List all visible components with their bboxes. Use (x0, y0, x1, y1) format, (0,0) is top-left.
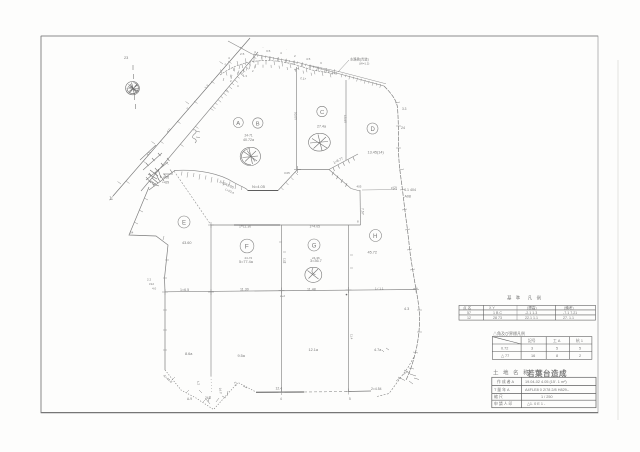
svg-text:11.2: 11.2 (283, 258, 287, 264)
svg-text:5: 5 (556, 347, 558, 351)
svg-text:≠(2): ≠(2) (391, 186, 397, 190)
svg-text:16: 16 (531, 354, 535, 358)
svg-text:1 ( 1.1: 1 ( 1.1 (375, 287, 384, 291)
svg-text:≠12: ≠12 (149, 282, 154, 286)
svg-text:F: F (245, 244, 249, 251)
svg-text:24: 24 (401, 126, 405, 130)
svg-text:4.3: 4.3 (404, 307, 409, 311)
svg-text:D: D (371, 127, 376, 133)
svg-text:1.3: 1.3 (204, 84, 210, 90)
svg-text:27. 1.1: 27. 1.1 (563, 316, 574, 320)
svg-text:2: 2 (186, 107, 190, 111)
svg-text:縮 尺: 縮 尺 (494, 394, 503, 399)
svg-text:2: 2 (252, 69, 254, 73)
svg-text:2+2: 2+2 (280, 294, 285, 298)
svg-text:△1. 0 E 1 -: △1. 0 E 1 - (527, 402, 546, 406)
svg-text:.: . (286, 47, 287, 51)
svg-text:8: 8 (357, 220, 359, 224)
svg-text:G: G (312, 244, 317, 250)
svg-text:13.45: 13.45 (343, 115, 347, 123)
svg-text:4.05: 4.05 (163, 176, 169, 180)
svg-text:N=4.05: N=4.05 (252, 184, 266, 189)
svg-text:土 地 名 称: 土 地 名 称 (493, 369, 530, 377)
svg-text:8: 8 (556, 354, 558, 358)
svg-text:2.17: 2.17 (300, 76, 307, 81)
svg-text:4.0: 4.0 (166, 128, 172, 134)
svg-text:若葉台造成: 若葉台造成 (526, 368, 567, 378)
svg-text:2=4.54: 2=4.54 (371, 387, 382, 391)
svg-text:22.1 1.1: 22.1 1.1 (525, 316, 538, 320)
svg-text:23: 23 (124, 56, 128, 60)
svg-text:1=11.30: 1=11.30 (239, 225, 251, 229)
svg-text:405: 405 (357, 185, 362, 189)
svg-text:2: 2 (294, 54, 296, 58)
svg-text:5: 5 (579, 347, 581, 351)
svg-text:4: 4 (254, 50, 256, 54)
svg-text:C: C (320, 110, 324, 116)
svg-text:2: 2 (579, 354, 581, 358)
svg-text:-7.1 7.21: -7.1 7.21 (563, 311, 577, 315)
svg-text:57: 57 (467, 311, 471, 315)
svg-text:(W=1.2): (W=1.2) (359, 62, 369, 66)
svg-text:A08: A08 (405, 195, 411, 199)
svg-text:E: E (182, 221, 186, 227)
svg-text:2.4: 2.4 (233, 381, 238, 386)
svg-text:3.3: 3.3 (402, 107, 407, 111)
svg-text:12.1a: 12.1a (309, 348, 319, 352)
svg-text:1 / 250: 1 / 250 (541, 395, 553, 399)
svg-text:4.1 404: 4.1 404 (404, 188, 416, 192)
svg-text:24: 24 (130, 231, 134, 235)
svg-text:A: A (236, 121, 240, 127)
svg-text:3.5: 3.5 (266, 49, 271, 53)
svg-text:+429: +429 (162, 181, 169, 185)
svg-text:0.72: 0.72 (501, 347, 508, 351)
svg-text:X Y: X Y (489, 306, 495, 310)
svg-text:3=36.7: 3=36.7 (310, 259, 322, 263)
svg-text:T 量 年 A: T 量 年 A (494, 387, 510, 392)
svg-text:3.05: 3.05 (284, 171, 290, 175)
svg-text:申 請 人 印: 申 請 人 印 (494, 401, 513, 406)
svg-text:40.72a: 40.72a (243, 138, 254, 142)
svg-text:B: B (256, 122, 260, 128)
svg-text:27.4a: 27.4a (317, 125, 326, 129)
svg-text:.: . (236, 48, 237, 52)
svg-text:△角及び界標凡例: △角及び界標凡例 (493, 330, 525, 336)
svg-text:4: 4 (280, 51, 282, 55)
svg-text:11.30: 11.30 (240, 287, 249, 291)
svg-text:工 A: 工 A (553, 339, 561, 343)
svg-text:記号: 記号 (528, 338, 536, 343)
svg-text:△ 77: △ 77 (501, 354, 509, 358)
svg-text:4.5: 4.5 (306, 57, 311, 61)
svg-text:3: 3 (531, 347, 533, 351)
svg-text:24.2: 24.2 (205, 396, 211, 400)
svg-text:7.5Y: 7.5Y (361, 208, 365, 216)
svg-text:点 名: 点 名 (463, 305, 472, 310)
svg-text:(標高): (標高) (527, 305, 537, 310)
svg-text:L=23.4: L=23.4 (225, 187, 235, 195)
svg-text:43.60: 43.60 (182, 241, 192, 245)
svg-text:5=77.4a: 5=77.4a (239, 260, 254, 264)
svg-text:24.2: 24.2 (218, 387, 223, 394)
svg-text:..: .. (262, 45, 264, 49)
svg-text:1.3: 1.3 (243, 74, 247, 78)
svg-text:4: 4 (237, 84, 239, 88)
svg-text:(備考): (備考) (564, 305, 574, 310)
svg-text:8.6a: 8.6a (185, 352, 193, 356)
svg-text:A4FLE8 0 2/78 2/8 H829--: A4FLE8 0 2/78 2/8 H829-- (525, 388, 570, 392)
svg-text:4: 4 (228, 56, 230, 60)
svg-text:作 成 者 A: 作 成 者 A (497, 379, 515, 384)
svg-text:24-71: 24-71 (245, 134, 253, 138)
svg-text:1=6.5: 1=6.5 (180, 288, 189, 292)
svg-text:基 準 凡 例: 基 準 凡 例 (507, 295, 543, 302)
svg-text:2.2: 2.2 (147, 278, 152, 282)
svg-text:1=4.05: 1=4.05 (310, 224, 321, 228)
svg-text:9.5a: 9.5a (238, 354, 246, 358)
svg-text:1=8.77: 1=8.77 (333, 156, 344, 164)
svg-text:12.4: 12.4 (276, 387, 283, 391)
svg-text:3: 3 (320, 61, 322, 65)
svg-text:4.7a: 4.7a (374, 348, 382, 352)
svg-text:45.72: 45.72 (368, 251, 378, 255)
svg-text:H: H (373, 234, 377, 240)
svg-text:13.45(14): 13.45(14) (368, 151, 385, 155)
svg-text:2.5: 2.5 (240, 52, 245, 56)
svg-text:A-9: A-9 (187, 397, 192, 401)
svg-text:11.48: 11.48 (307, 287, 316, 291)
svg-text:11.4: 11.4 (350, 334, 354, 340)
svg-text:12: 12 (467, 316, 471, 320)
svg-text:50.05: 50.05 (294, 112, 298, 120)
svg-text:28 73: 28 73 (493, 316, 502, 320)
svg-text:5: 5 (349, 397, 351, 401)
svg-text:19.04-02 4.05 (15'. 1 m²): 19.04-02 4.05 (15'. 1 m²) (525, 380, 567, 384)
svg-text:杭 1: 杭 1 (576, 338, 583, 343)
svg-text:4.0: 4.0 (152, 287, 157, 291)
svg-text:1 B C: 1 B C (493, 311, 502, 315)
svg-text:-2.1 1.3: -2.1 1.3 (525, 311, 537, 315)
svg-text:A=44.8: A=44.8 (162, 374, 173, 384)
svg-text:4: 4 (280, 397, 282, 401)
svg-text:2: 2 (230, 79, 232, 83)
svg-text:4.2: 4.2 (196, 380, 201, 385)
